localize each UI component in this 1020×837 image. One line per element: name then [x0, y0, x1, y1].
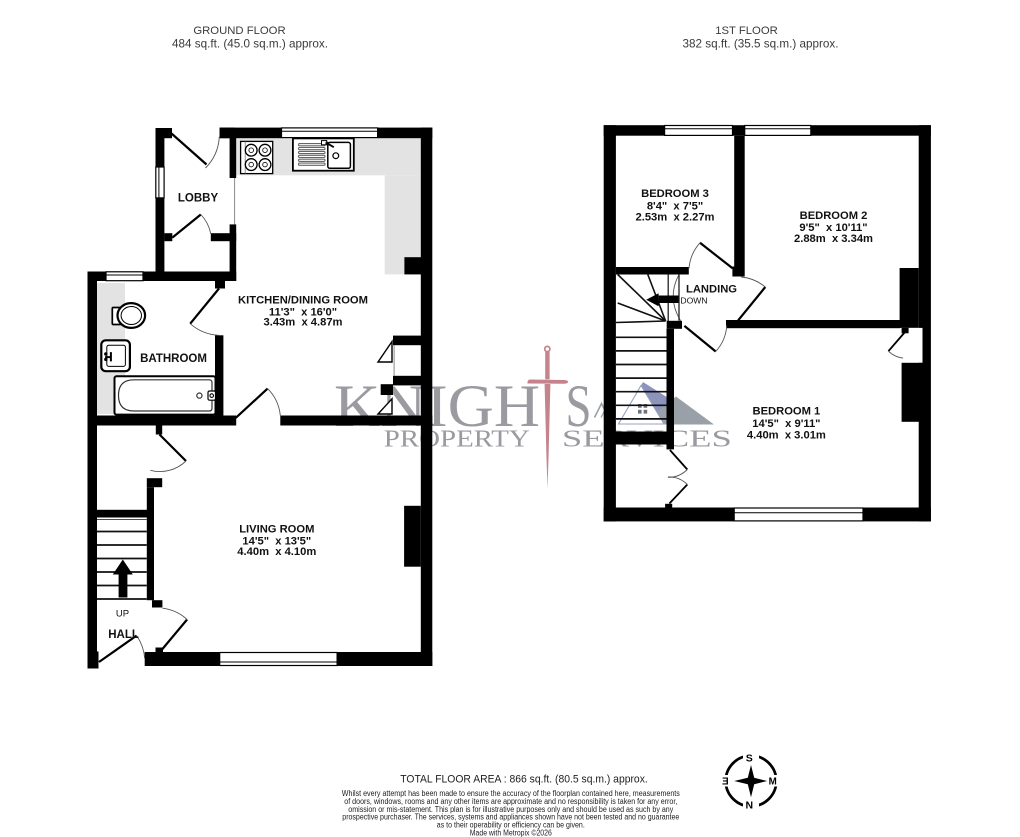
- svg-text:LIVING ROOM: LIVING ROOM: [239, 524, 314, 536]
- svg-text:3.43m x 4.87m: 3.43m x 4.87m: [264, 317, 343, 329]
- svg-text:PROPERTY: PROPERTY: [384, 427, 530, 453]
- svg-text:484 sq.ft. (45.0 sq.m.) approx: 484 sq.ft. (45.0 sq.m.) approx.: [172, 38, 328, 51]
- svg-text:UP: UP: [116, 609, 129, 620]
- svg-text:14'5" x 9'11": 14'5" x 9'11": [752, 418, 820, 430]
- svg-text:1ST FLOOR: 1ST FLOOR: [715, 25, 778, 37]
- svg-text:N: N: [746, 800, 754, 812]
- svg-text:2.88m x 3.34m: 2.88m x 3.34m: [794, 233, 873, 245]
- svg-text:LOBBY: LOBBY: [178, 193, 219, 205]
- svg-text:S: S: [746, 752, 753, 764]
- svg-text:382 sq.ft. (35.5 sq.m.) approx: 382 sq.ft. (35.5 sq.m.) approx.: [683, 38, 839, 51]
- svg-text:E: E: [722, 776, 729, 787]
- svg-text:TOTAL FLOOR AREA : 866 sq.ft.: TOTAL FLOOR AREA : 866 sq.ft. (80.5 sq.m…: [400, 774, 648, 786]
- svg-text:4.40m x 4.10m: 4.40m x 4.10m: [237, 546, 316, 558]
- svg-text:M: M: [769, 776, 777, 787]
- svg-text:4.40m x 3.01m: 4.40m x 3.01m: [747, 430, 826, 442]
- svg-text:LANDING: LANDING: [686, 284, 737, 296]
- svg-text:BATHROOM: BATHROOM: [140, 353, 207, 365]
- svg-text:DOWN: DOWN: [680, 296, 707, 306]
- svg-text:BEDROOM 2: BEDROOM 2: [800, 210, 868, 222]
- svg-text:BEDROOM 1: BEDROOM 1: [753, 406, 821, 418]
- svg-text:KITCHEN/DINING ROOM: KITCHEN/DINING ROOM: [238, 295, 368, 307]
- svg-text:BEDROOM 3: BEDROOM 3: [641, 188, 709, 200]
- svg-text:2.53m x 2.27m: 2.53m x 2.27m: [636, 212, 715, 224]
- svg-text:HALL: HALL: [108, 629, 139, 641]
- svg-text:GROUND FLOOR: GROUND FLOOR: [193, 25, 285, 37]
- svg-text:Made with Metropix ©2026: Made with Metropix ©2026: [470, 829, 553, 837]
